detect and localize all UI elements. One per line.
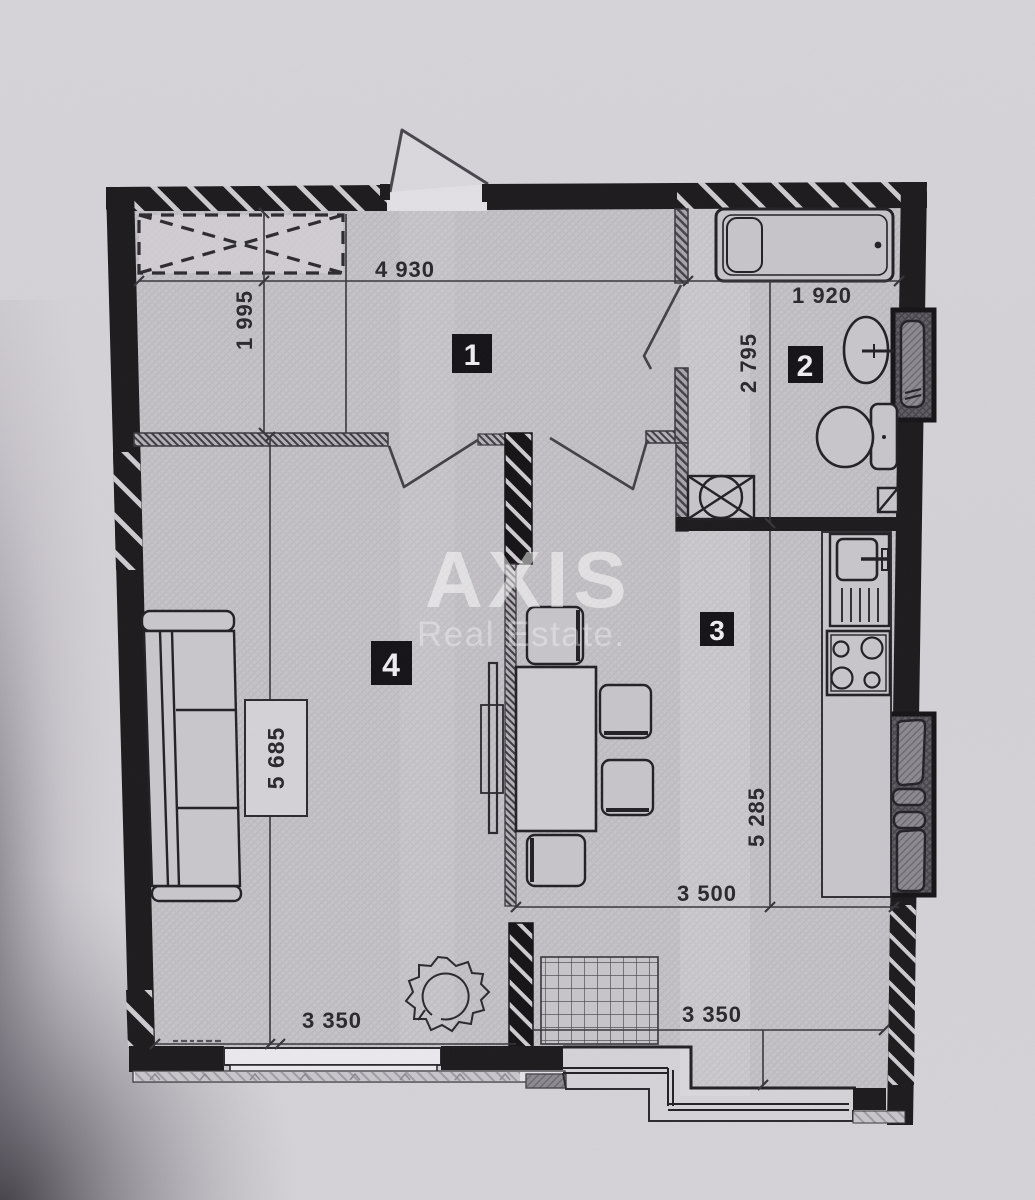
svg-text:AXIS: AXIS [425, 535, 632, 624]
svg-text:Real Estate.: Real Estate. [417, 615, 626, 654]
